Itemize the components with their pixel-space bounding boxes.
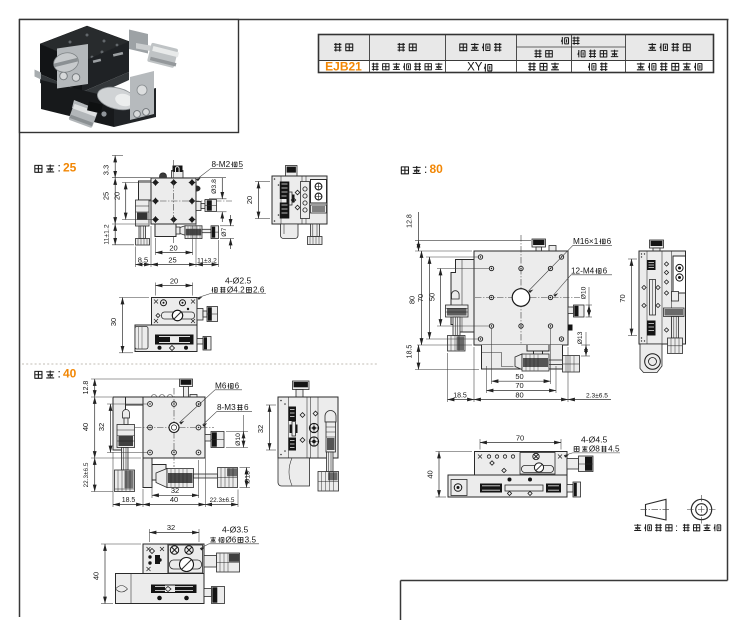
svg-text:8-M3: 8-M3 <box>217 403 236 412</box>
svg-text:40: 40 <box>92 572 101 580</box>
svg-text:M16×1: M16×1 <box>573 237 599 246</box>
svg-text::: : <box>58 161 61 175</box>
svg-text:30: 30 <box>109 318 118 326</box>
svg-text:Ø6: Ø6 <box>225 535 236 544</box>
svg-text:8.5: 8.5 <box>138 255 148 264</box>
svg-text:25: 25 <box>63 161 77 175</box>
svg-text:50: 50 <box>515 372 523 381</box>
svg-text:22.3±6.5: 22.3±6.5 <box>83 462 90 487</box>
svg-text:Ø10: Ø10 <box>235 433 242 446</box>
svg-text:Ø7: Ø7 <box>221 227 228 236</box>
svg-text:Ø8: Ø8 <box>589 444 600 453</box>
svg-text:Ø10: Ø10 <box>581 286 588 299</box>
svg-text:18.5: 18.5 <box>453 392 467 399</box>
svg-text:20: 20 <box>245 196 254 204</box>
svg-text:M6: M6 <box>215 381 227 390</box>
svg-text:40: 40 <box>170 495 178 504</box>
svg-text:6: 6 <box>235 381 240 390</box>
svg-text:22.3±6.5: 22.3±6.5 <box>210 497 235 504</box>
svg-text:80: 80 <box>515 390 523 399</box>
svg-text::: : <box>675 523 678 534</box>
svg-text::: : <box>58 367 61 381</box>
svg-text::: : <box>424 162 427 176</box>
svg-text:70: 70 <box>515 381 523 390</box>
svg-text:25: 25 <box>168 255 176 264</box>
svg-text:11±3.2: 11±3.2 <box>197 257 217 264</box>
svg-text:80: 80 <box>430 162 444 176</box>
svg-text:20: 20 <box>112 192 121 200</box>
svg-text:20: 20 <box>169 244 177 253</box>
svg-text:32: 32 <box>97 423 106 431</box>
svg-text:4-Ø2.5: 4-Ø2.5 <box>225 275 251 285</box>
svg-text:32: 32 <box>167 523 175 532</box>
svg-text:40: 40 <box>81 423 90 431</box>
svg-text:18.5: 18.5 <box>407 345 414 359</box>
svg-text:Ø3.8: Ø3.8 <box>211 179 218 194</box>
svg-text:12.8: 12.8 <box>83 381 90 395</box>
svg-text:50: 50 <box>428 293 437 301</box>
svg-text:2.3±6.5: 2.3±6.5 <box>586 392 608 399</box>
svg-text:4-Ø4.5: 4-Ø4.5 <box>581 435 607 445</box>
svg-text:6: 6 <box>244 403 249 412</box>
svg-text:5: 5 <box>239 160 244 169</box>
svg-text:18.5: 18.5 <box>122 497 136 504</box>
svg-text:32: 32 <box>256 425 265 433</box>
svg-text:70: 70 <box>516 433 524 442</box>
svg-text:3.5: 3.5 <box>245 535 257 544</box>
svg-text:20: 20 <box>170 276 178 285</box>
svg-text:70: 70 <box>416 294 425 302</box>
svg-text:Ø4.2: Ø4.2 <box>227 285 245 294</box>
svg-text:Ø13: Ø13 <box>577 331 584 344</box>
svg-text:11±1.2: 11±1.2 <box>104 224 111 244</box>
svg-text:8-M2: 8-M2 <box>212 160 231 169</box>
svg-text:4.5: 4.5 <box>608 444 620 453</box>
svg-text:12.8: 12.8 <box>407 214 414 228</box>
svg-text:25: 25 <box>102 192 111 200</box>
svg-text:XY: XY <box>467 62 483 74</box>
svg-text:Ø13: Ø13 <box>245 471 252 484</box>
svg-text:6: 6 <box>607 237 612 246</box>
svg-text:32: 32 <box>171 486 179 495</box>
svg-text:12-M4: 12-M4 <box>571 266 595 275</box>
svg-text:40: 40 <box>63 367 77 381</box>
svg-text:EJB21: EJB21 <box>325 60 362 74</box>
svg-text:6: 6 <box>603 266 608 275</box>
svg-text:40: 40 <box>426 470 435 478</box>
svg-text:3.3: 3.3 <box>102 165 111 175</box>
svg-text:4-Ø3.5: 4-Ø3.5 <box>222 524 248 534</box>
svg-text:70: 70 <box>618 294 627 302</box>
svg-text:2.6: 2.6 <box>253 285 265 294</box>
